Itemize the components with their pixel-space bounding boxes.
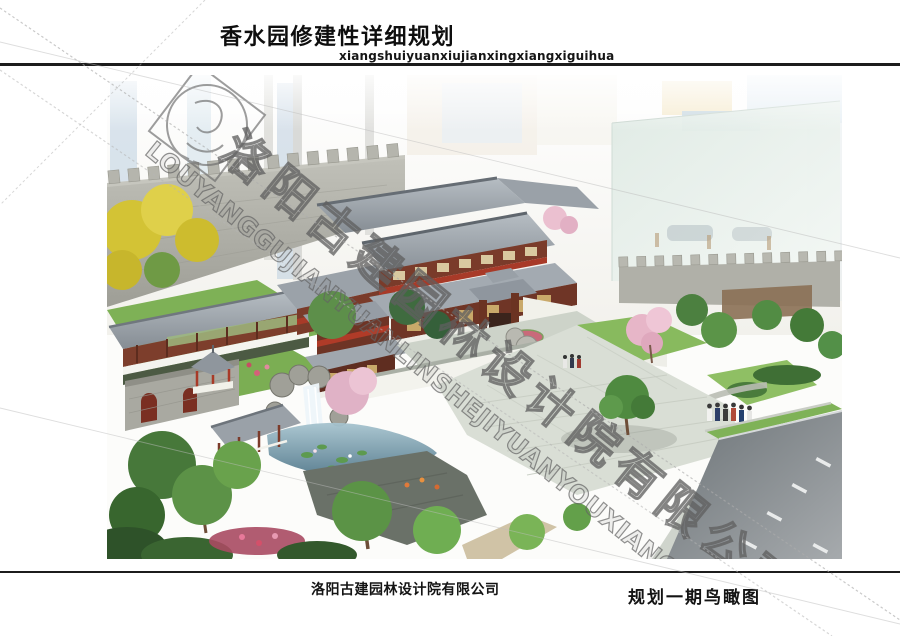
birdseye-rendering: 洛阳古建园林设计院有限公司 LOUYANGGUJIANYUANLINSHEJIY…: [107, 75, 842, 559]
sheet-title: 香水园修建性详细规划: [220, 19, 455, 51]
visitor-group-terrace: [563, 354, 581, 368]
sheet-title-pinyin: xiangshuiyuanxiujianxingxiangxiguihua: [339, 49, 614, 63]
drawing-caption: 规划一期鸟瞰图: [628, 583, 761, 608]
drawing-sheet: 香水园修建性详细规划 xiangshuiyuanxiujianxingxiang…: [0, 0, 900, 636]
parked-car: [732, 227, 772, 241]
footer-rule: [0, 571, 900, 573]
arched-door: [141, 393, 157, 423]
header-rule: [0, 63, 900, 66]
company-name: 洛阳古建园林设计院有限公司: [311, 579, 500, 599]
parked-car: [667, 225, 713, 241]
